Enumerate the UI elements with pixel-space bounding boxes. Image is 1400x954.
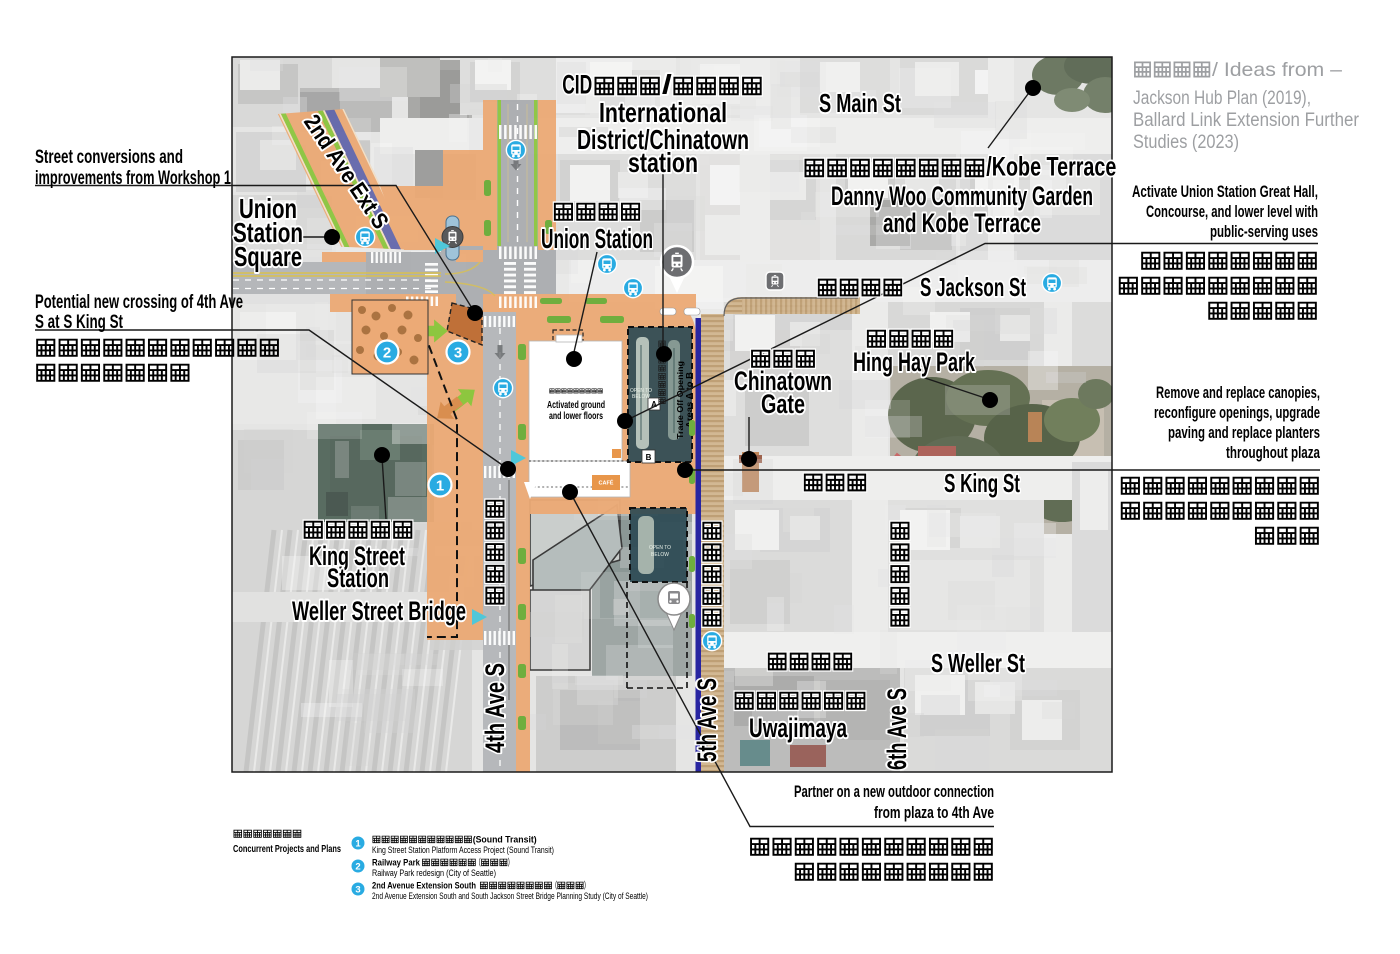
- svg-text:/: /: [662, 70, 673, 100]
- svg-text:2nd Avenue Extension South: 2nd Avenue Extension South: [372, 881, 476, 891]
- svg-text:CID: CID: [562, 70, 592, 100]
- svg-text:4th Ave S: 4th Ave S: [480, 663, 510, 753]
- svg-text:OPEN TO: OPEN TO: [649, 545, 671, 551]
- svg-text:2: 2: [355, 861, 360, 872]
- svg-text:S Weller St: S Weller St: [931, 648, 1025, 678]
- svg-text:Square: Square: [234, 241, 302, 272]
- svg-text:6th Ave S: 6th Ave S: [882, 688, 912, 770]
- svg-text:Railway Park redesign (City of: Railway Park redesign (City of Seattle): [372, 868, 496, 878]
- svg-text:S Jackson St: S Jackson St: [920, 272, 1026, 302]
- svg-text:public-serving uses: public-serving uses: [1210, 223, 1318, 241]
- svg-text:Ballard Link Extension Further: Ballard Link Extension Further: [1133, 110, 1360, 131]
- svg-text:B: B: [646, 453, 652, 462]
- svg-text:）: ）: [508, 858, 512, 868]
- svg-text:/ Ideas from –: / Ideas from –: [1212, 59, 1342, 81]
- svg-text:Street conversions and: Street conversions and: [35, 146, 183, 168]
- svg-text:paving and replace planters: paving and replace planters: [1168, 424, 1320, 442]
- svg-text:CAFÉ: CAFÉ: [599, 479, 614, 487]
- svg-text:S King St: S King St: [944, 468, 1020, 498]
- svg-text:3: 3: [454, 345, 462, 362]
- svg-text:2nd Avenue Extension South and: 2nd Avenue Extension South and South Jac…: [372, 891, 648, 901]
- svg-text:Gate: Gate: [761, 389, 805, 419]
- svg-text:5th Ave S: 5th Ave S: [692, 678, 722, 762]
- svg-text:Railway Park: Railway Park: [372, 858, 421, 868]
- svg-text:(Sound Transit): (Sound Transit): [473, 835, 537, 845]
- svg-text:Partner on a new outdoor conne: Partner on a new outdoor connection: [794, 783, 994, 801]
- svg-text:BELOW: BELOW: [651, 552, 669, 558]
- svg-text:Concurrent Projects and Plans: Concurrent Projects and Plans: [233, 843, 341, 855]
- svg-text:Studies (2023): Studies (2023): [1133, 132, 1239, 153]
- svg-text:Uwajimaya: Uwajimaya: [749, 713, 847, 743]
- svg-text:throughout plaza: throughout plaza: [1226, 444, 1321, 462]
- svg-text:Areas A to B: Areas A to B: [684, 372, 694, 428]
- svg-text:station: station: [628, 147, 698, 178]
- svg-text:Concourse, and lower level wit: Concourse, and lower level with: [1146, 203, 1318, 221]
- svg-text:Station: Station: [327, 563, 389, 593]
- svg-text:Jackson Hub Plan (2019),: Jackson Hub Plan (2019),: [1133, 88, 1311, 109]
- svg-text:BELOW: BELOW: [632, 394, 650, 400]
- svg-text:improvements from Workshop 1: improvements from Workshop 1: [35, 167, 231, 189]
- svg-text:Remove and replace canopies,: Remove and replace canopies,: [1156, 384, 1320, 402]
- svg-text:Weller Street Bridge: Weller Street Bridge: [292, 596, 466, 626]
- svg-text:2: 2: [383, 345, 391, 362]
- svg-text:1: 1: [355, 838, 361, 849]
- svg-text:1: 1: [436, 478, 444, 495]
- svg-text:and Kobe Terrace: and Kobe Terrace: [883, 208, 1041, 238]
- svg-text:Activate Union Station Great H: Activate Union Station Great Hall,: [1132, 183, 1318, 201]
- svg-text:King Street Station Platform A: King Street Station Platform Access Proj…: [372, 845, 554, 855]
- svg-text:reconfigure openings, upgrade: reconfigure openings, upgrade: [1154, 404, 1320, 422]
- svg-text:3: 3: [355, 884, 360, 895]
- svg-text:Potential new crossing of 4th: Potential new crossing of 4th Ave: [35, 291, 243, 313]
- svg-text:（: （: [477, 858, 481, 868]
- svg-text:from plaza to 4th Ave: from plaza to 4th Ave: [874, 804, 994, 822]
- svg-text:S Main St: S Main St: [819, 88, 901, 118]
- svg-text:S at S King St: S at S King St: [35, 311, 123, 333]
- svg-text:Hing Hay Park: Hing Hay Park: [853, 347, 975, 377]
- svg-text:（: （: [553, 881, 557, 891]
- svg-text:/Kobe Terrace: /Kobe Terrace: [986, 152, 1116, 182]
- svg-text:）: ）: [584, 881, 588, 891]
- svg-text:and lower floors: and lower floors: [549, 410, 603, 422]
- svg-text:Union Station: Union Station: [541, 223, 653, 254]
- svg-text:Danny Woo Community Garden: Danny Woo Community Garden: [831, 181, 1093, 211]
